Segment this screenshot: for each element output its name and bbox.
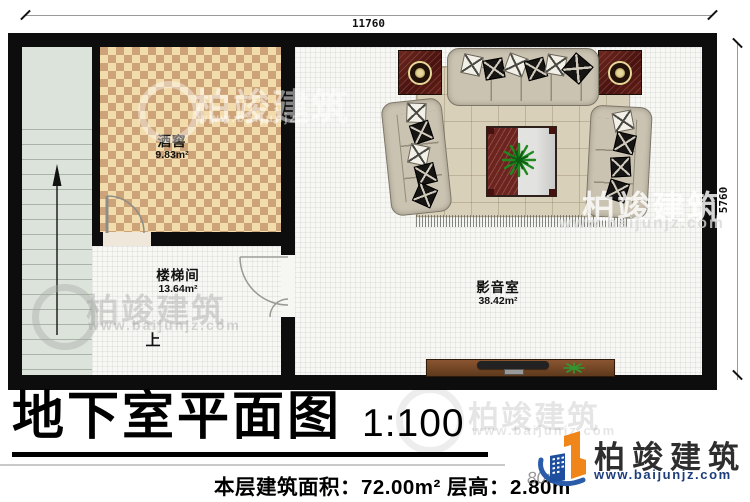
speaker-right — [598, 50, 642, 95]
dimension-line-top — [25, 15, 712, 16]
plant-icon — [561, 361, 587, 375]
sofa-right — [585, 104, 653, 219]
tv-cabinet — [426, 359, 615, 377]
brand-logo-icon — [538, 428, 594, 492]
stairs-direction-label: 上 — [138, 329, 168, 350]
sofa-pillow — [611, 109, 634, 132]
room-area: 13.64m² — [136, 284, 220, 296]
room-name: 影音室 — [456, 281, 540, 296]
room-area: 9.83m² — [130, 150, 214, 162]
brand-website: www.baijunjz.com — [594, 467, 732, 482]
room-area: 38.42m² — [456, 296, 540, 308]
sheet-title: 地下室平面图 — [12, 389, 342, 446]
floor-info: 本层建筑面积：72.00m² 层高：2.80m — [214, 470, 571, 500]
sofa-pillow — [610, 157, 631, 178]
dimension-width-label: 11760 — [25, 17, 712, 30]
plant-icon — [497, 138, 541, 182]
title-underline — [12, 452, 488, 457]
room-stairwell-floor — [92, 246, 281, 375]
speaker-left — [398, 50, 442, 95]
stair-treads — [22, 115, 92, 375]
sofa-pillow — [482, 57, 505, 80]
sheet-scale: 1:100 — [362, 402, 465, 446]
tv-stand — [504, 369, 524, 375]
title-grayline — [0, 464, 505, 466]
room-label-stairwell: 楼梯间 13.64m² — [136, 269, 220, 295]
sofa-pillow — [460, 53, 484, 77]
door-opening-wine-cellar — [103, 232, 151, 246]
tv — [477, 361, 549, 369]
dimension-height-label: 5760 — [717, 180, 731, 220]
floor-plan: 酒窖 9.83m² 楼梯间 13.64m² 影音室 38.42m² 上 — [8, 33, 717, 390]
room-label-media-room: 影音室 38.42m² — [456, 281, 540, 307]
sofa-top — [447, 48, 599, 106]
stairs — [22, 47, 92, 375]
floor-plan-sheet: 11760 5760 — [0, 0, 750, 502]
door-opening-stairwell — [281, 255, 295, 317]
room-name: 酒窖 — [130, 135, 214, 150]
room-name: 楼梯间 — [136, 269, 220, 284]
room-label-wine-cellar: 酒窖 9.83m² — [130, 135, 214, 161]
sofa-left — [380, 97, 453, 217]
speaker-ring-icon — [608, 61, 632, 85]
dimension-line-right — [737, 43, 738, 380]
speaker-ring-icon — [408, 61, 432, 85]
